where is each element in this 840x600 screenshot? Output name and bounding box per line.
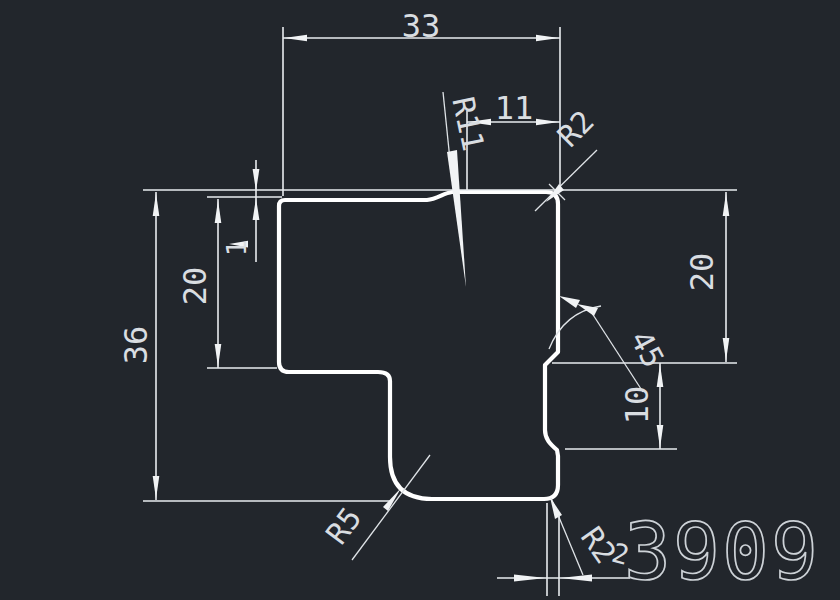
radius-callout-r2-top: R2 [535,103,601,211]
dim-height-36: 36 [117,192,393,501]
dim-20-left-label: 20 [176,267,214,306]
dim-10-label: 10 [618,386,656,425]
dim-45-label: 45 [623,325,671,373]
dim-notch-10: 10 [565,363,677,449]
cad-canvas[interactable]: 33 11 R11 R2 1 [0,0,840,600]
radius-callout-r5: R5 [319,455,430,560]
dim-1-label: 1 [221,240,252,256]
cad-drawing: 33 11 R11 R2 1 [0,0,840,600]
dim-33-label: 33 [402,7,441,45]
dim-20-right-label: 20 [683,253,721,292]
dim-angle-45: 45 [549,296,671,392]
profile-outline [279,192,558,499]
dim-11-label: 11 [495,89,534,127]
r11-label: R11 [446,94,492,154]
part-number: 3909 [624,507,820,597]
r2-top-label: R2 [550,103,600,153]
r5-label: R5 [319,501,369,551]
dim-height-20-left: 20 [176,199,277,368]
dim-36-label: 36 [117,326,155,365]
